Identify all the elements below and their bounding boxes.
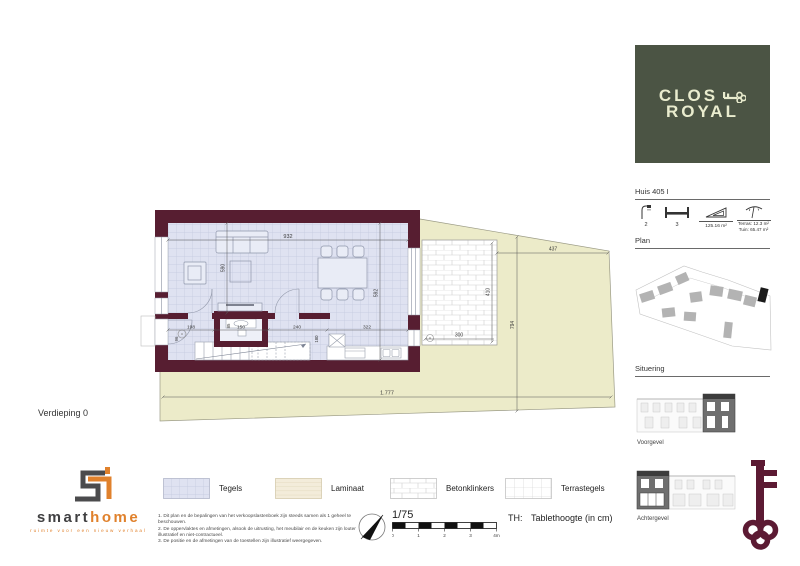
achtergevel-drawing — [635, 462, 740, 514]
tegels-label: Tegels — [219, 484, 242, 493]
bed-icon — [664, 204, 690, 220]
tuin-label: Tuin: — [739, 227, 749, 232]
dim-wc-door: 85 — [226, 323, 231, 328]
dim-terrace-depth: 410 — [486, 288, 492, 297]
scale-tick-0: 0 — [392, 533, 394, 538]
terras-label: Terras: — [738, 221, 752, 226]
smarthome-logo: smarthome ruimte voor een nieuw verhaal — [26, 466, 151, 533]
area-value: 125.16 m² — [705, 224, 727, 229]
scale-tick-2: 2 — [443, 533, 446, 538]
betonklinkers-label: Betonklinkers — [446, 484, 494, 493]
tegels-swatch — [163, 478, 210, 499]
dining-table — [318, 246, 367, 300]
terrastegels-swatch — [505, 478, 552, 499]
project-logo-box: CLOS ROYAL — [635, 45, 770, 163]
showers-count: 2 — [644, 222, 647, 228]
dim-kitchen-width: 322 — [363, 325, 371, 331]
floor-plan-drawing: 1.777 437 794 410 300 — [0, 0, 630, 450]
window-left-large — [155, 237, 168, 292]
scale-bar: 0 1 2 3 4m — [392, 522, 504, 540]
voorgevel-drawing — [635, 385, 740, 437]
floor-label: Verdieping 0 — [38, 408, 88, 418]
scale-ratio: 1/75 — [392, 509, 413, 521]
project-name-royal: ROYAL — [666, 104, 739, 120]
dim-terrace-width: 300 — [455, 333, 464, 339]
shower-icon — [639, 204, 654, 220]
smarthome-house-icon — [65, 466, 113, 506]
dim-left-height: 590 — [221, 264, 227, 273]
divider — [699, 221, 733, 222]
tableheight-note: TH: Tablethoogte (in cm) — [508, 513, 613, 523]
front-door-opening — [155, 319, 168, 345]
situering-map — [632, 252, 774, 362]
dim-top-width: 932 — [283, 234, 292, 240]
disclaimer-notes: 1. Dit plan en de bepalingen van het ver… — [158, 514, 358, 545]
dim-site-width: 1.777 — [380, 391, 394, 397]
plan-sheet: 1.777 437 794 410 300 — [0, 0, 800, 566]
key-icon — [722, 90, 746, 103]
note-2: 2. De oppervlaktes en afmetingen, alsook… — [158, 527, 358, 540]
voorgevel-highlighted-unit — [703, 394, 735, 432]
achtergevel-label: Achtergevel — [637, 516, 669, 522]
unit-stats-row: 2 3 125.16 m² — [635, 204, 772, 238]
scale-tick-1: 1 — [417, 533, 420, 538]
dim-right-height: 592 — [374, 289, 380, 298]
laminaat-label: Laminaat — [331, 484, 364, 493]
legend-item-betonklinkers: Betonklinkers — [390, 478, 494, 499]
map-buildings — [639, 272, 757, 338]
oven-icon — [345, 348, 365, 358]
showers-stat: 2 — [635, 204, 657, 238]
voorgevel-label: Voorgevel — [637, 440, 664, 446]
laminaat-swatch — [275, 478, 322, 499]
betonklinkers-swatch — [390, 478, 437, 499]
smarthome-tagline: ruimte voor een nieuw verhaal — [26, 528, 151, 533]
legend-item-terrastegels: Terrastegels — [505, 478, 605, 499]
note-3: 3. De positie en de afmetingen van de to… — [158, 539, 358, 545]
tuin-row: Tuin: 65.47 m² — [739, 227, 768, 233]
parasol-icon — [744, 204, 764, 219]
brand-key-icon — [740, 460, 782, 552]
note-1: 1. Dit plan en de bepalingen van het ver… — [158, 514, 358, 527]
area-stat: 125.16 m² — [697, 204, 735, 238]
th-label: TH: — [508, 513, 523, 523]
sofa — [216, 231, 268, 253]
dim-garden-depth: 794 — [510, 321, 516, 330]
section-plan: Plan — [635, 236, 770, 249]
bedrooms-stat: 3 — [657, 204, 697, 238]
logo-home: home — [90, 509, 140, 526]
dim-wc-width: 150 — [237, 325, 245, 331]
tuin-value: 65.47 m² — [750, 227, 768, 232]
north-arrow-icon — [356, 511, 388, 543]
logo-smart: smart — [37, 509, 90, 526]
window-left-small — [155, 298, 168, 314]
area-triangle-icon — [704, 204, 728, 220]
terras-value: 12.3 m² — [753, 221, 769, 226]
armchair — [184, 262, 206, 284]
bedrooms-count: 3 — [675, 222, 678, 228]
th-text: Tablethoogte (in cm) — [531, 513, 613, 523]
unit-title: Huis 405 I — [635, 187, 770, 200]
entrance-porch — [141, 316, 155, 346]
project-name-line2: ROYAL — [666, 104, 739, 120]
window-right-small — [408, 330, 420, 346]
legend-item-tegels: Tegels — [163, 478, 242, 499]
dim-stairs-width: 240 — [293, 325, 301, 331]
wc-toilet — [238, 330, 246, 336]
legend-item-laminaat: Laminaat — [275, 478, 364, 499]
dim-hall-depth: 96 — [174, 336, 179, 341]
map-highlighted-unit — [757, 287, 768, 303]
outdoor-stat: Terras: 12.3 m² Tuin: 65.47 m² — [735, 204, 772, 238]
dim-garden-width: 437 — [549, 247, 558, 253]
sliding-door-right — [408, 248, 420, 315]
smarthome-wordmark: smarthome — [26, 511, 151, 525]
terrastegels-label: Terrastegels — [561, 484, 605, 493]
scale-tick-4: 4m — [493, 533, 500, 538]
dim-stairs-depth: 180 — [314, 335, 319, 343]
scale-tick-3: 3 — [469, 533, 472, 538]
tv-sideboard — [218, 303, 262, 311]
section-situering: Situering — [635, 364, 770, 377]
dim-hall-width: 198 — [187, 325, 195, 331]
achtergevel-highlighted-unit — [637, 471, 669, 509]
